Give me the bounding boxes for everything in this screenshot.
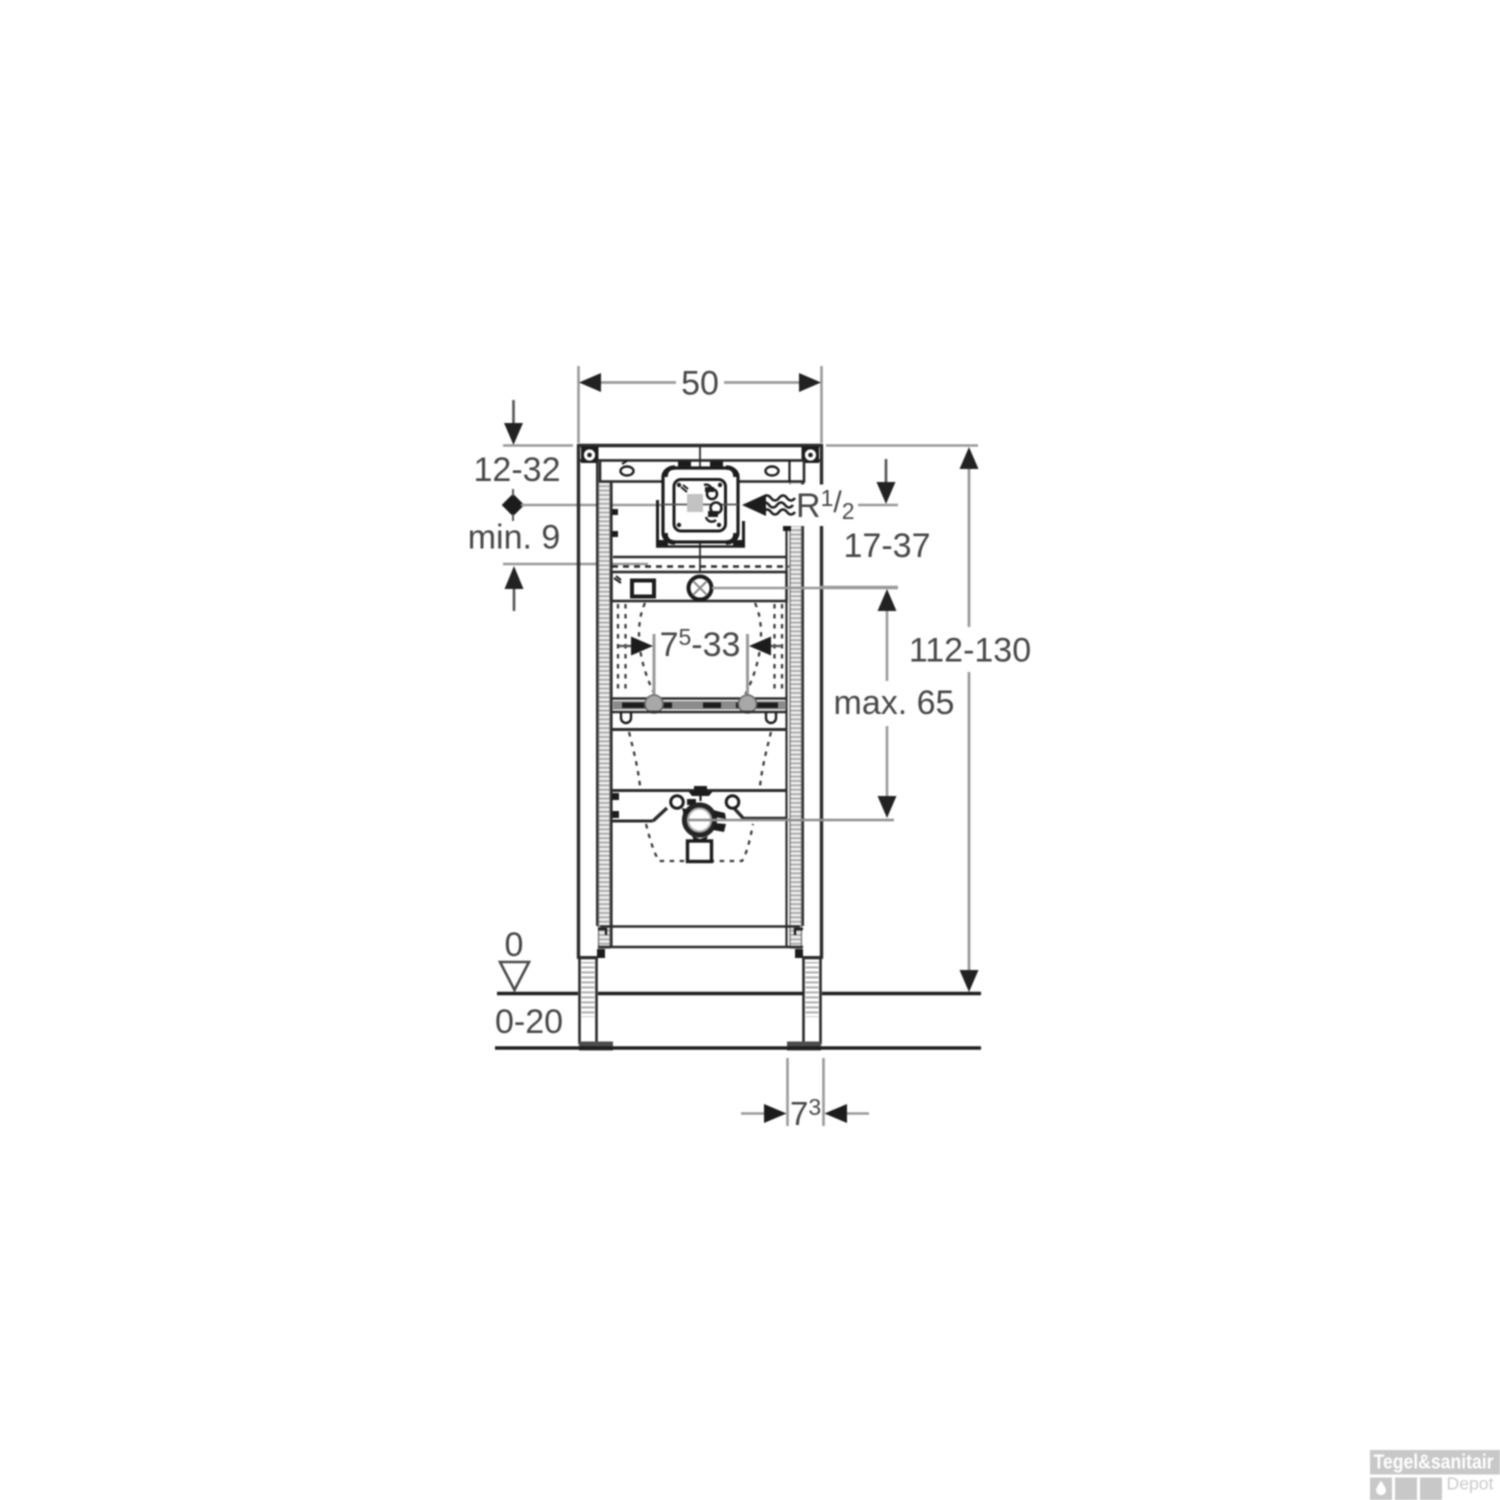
svg-text:Depot: Depot: [1447, 1474, 1494, 1494]
svg-text:17-37: 17-37: [844, 527, 931, 565]
svg-text:0: 0: [505, 926, 524, 964]
svg-text:0-20: 0-20: [495, 1003, 563, 1041]
svg-text:12-32: 12-32: [474, 451, 561, 489]
svg-text:min. 9: min. 9: [468, 519, 561, 557]
svg-text:75-33: 75-33: [660, 624, 741, 664]
svg-text:max. 65: max. 65: [834, 684, 955, 722]
svg-text:Tegel&sanitair: Tegel&sanitair: [1374, 1452, 1494, 1474]
svg-text:50: 50: [681, 365, 719, 403]
svg-text:112-130: 112-130: [909, 632, 1031, 670]
